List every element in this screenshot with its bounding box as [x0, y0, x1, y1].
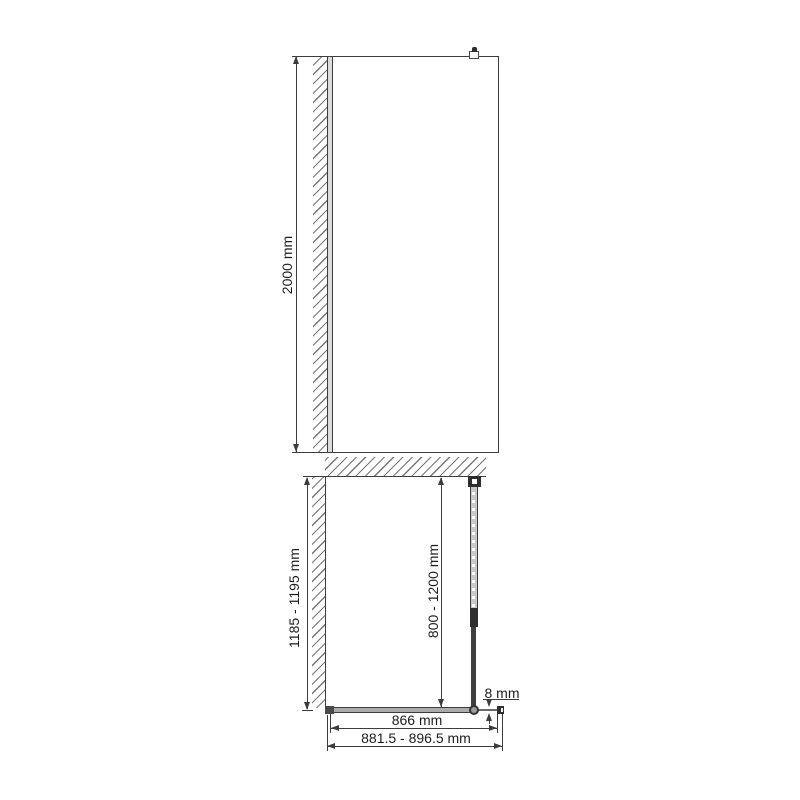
- plan-glass-end-cap-notch: [501, 708, 503, 712]
- plan-glass-end-cap: [497, 706, 504, 714]
- front-glass-panel: [327, 56, 499, 453]
- plan-back-wall-hatch: [325, 457, 486, 477]
- support-bar-glass-joint: [469, 705, 479, 715]
- support-bar-wall-bracket-hole: [472, 479, 477, 484]
- shower-screen-dimension-drawing: 2000 mm 1185 - 1195 mm 800 - 1200 mm: [0, 0, 800, 800]
- dim-height-line: [296, 57, 297, 452]
- front-wall-profile: [328, 57, 333, 452]
- front-wall-hatch: [313, 57, 327, 452]
- plan-glass-wall-profile: [325, 706, 334, 714]
- dim-overall-width-arrow-left: [327, 743, 335, 749]
- dim-glass-thickness-line-bottom: [489, 719, 490, 724]
- plan-side-wall-hatch: [312, 477, 326, 708]
- dim-support-bar-arrow-bottom: [438, 699, 444, 707]
- dim-support-bar-arrow-top: [438, 477, 444, 485]
- wall-bracket-front-knob: [472, 47, 477, 52]
- plan-bottom-extension-line: [302, 710, 313, 711]
- dim-depth-label: 1185 - 1195 mm: [286, 538, 302, 658]
- support-bar-outer-tube: [470, 487, 478, 608]
- dim-depth-arrow-top: [304, 477, 310, 485]
- dim-depth-arrow-bottom: [304, 702, 310, 710]
- support-bar-tube-dashes: [472, 487, 475, 608]
- dim-overall-width-arrow-right: [494, 743, 502, 749]
- dim-depth-line: [307, 478, 308, 709]
- dim-support-bar-label: 800 - 1200 mm: [425, 536, 441, 646]
- dim-overall-width-label: 881.5 - 896.5 mm: [346, 730, 486, 744]
- dim-overall-width-line: [327, 746, 503, 747]
- wall-bracket-front: [469, 51, 479, 59]
- dim-glass-width-arrow-left: [331, 725, 339, 731]
- support-bar-inner-rod: [471, 627, 476, 706]
- dim-support-bar-line: [441, 478, 442, 707]
- dim-glass-width-ext-right: [497, 714, 498, 733]
- support-bar-coupler: [470, 608, 478, 627]
- dim-glass-thickness-arrow-down: [486, 699, 492, 707]
- dim-glass-thickness-label: 8 mm: [482, 685, 522, 698]
- dim-height-arrow-top: [293, 56, 299, 64]
- dim-glass-width-label: 866 mm: [347, 712, 487, 726]
- dim-glass-width-line: [331, 728, 497, 729]
- dim-height-label: 2000 mm: [279, 225, 295, 305]
- front-bottom-extension-line: [292, 452, 328, 453]
- plan-glass-end-segment: [478, 709, 498, 711]
- support-bar-wall-bracket: [468, 476, 481, 487]
- dim-glass-width-arrow-right: [489, 725, 497, 731]
- dim-height-arrow-bottom: [293, 444, 299, 452]
